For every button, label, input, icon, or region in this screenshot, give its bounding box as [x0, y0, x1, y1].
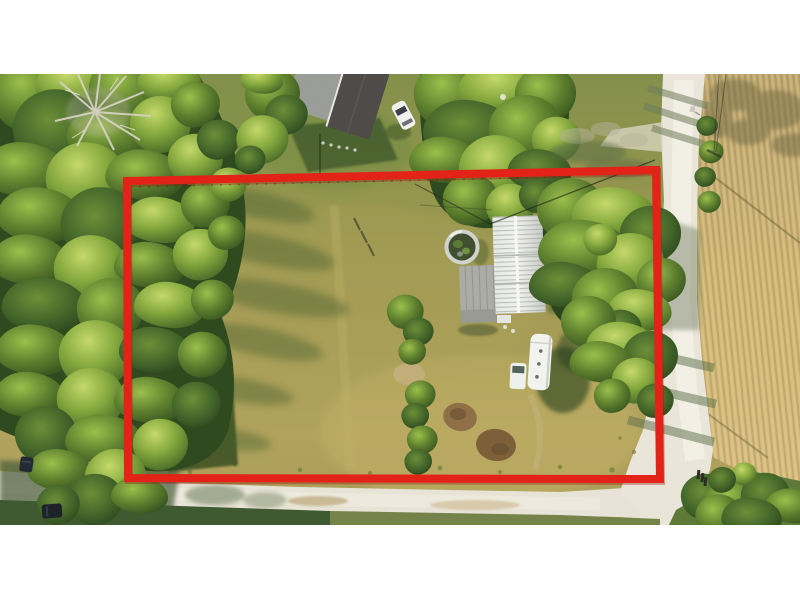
porch-step: [461, 309, 497, 323]
woods: [0, 55, 247, 525]
screenshot-canvas: [0, 0, 800, 600]
utility-cart[interactable]: [509, 363, 526, 390]
aerial-photo: [0, 0, 800, 600]
house-steps: [497, 315, 511, 323]
rv-trailer[interactable]: [527, 333, 553, 390]
crop-field: [697, 74, 800, 482]
